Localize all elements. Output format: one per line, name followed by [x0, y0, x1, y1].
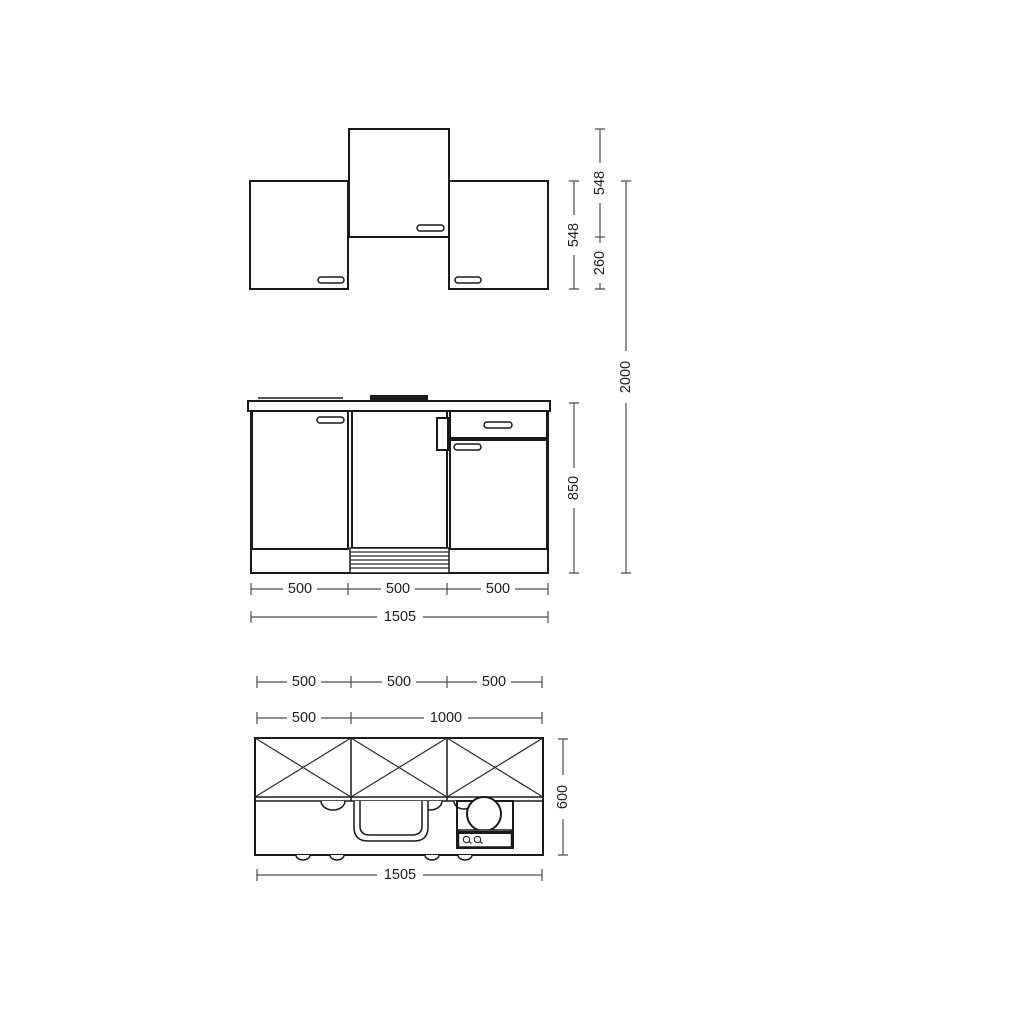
- dimension-middle-cabinet: 548 260: [592, 129, 608, 289]
- fridge-handle: [437, 418, 448, 450]
- dim-label-plan-overall-width: 1505: [384, 867, 416, 883]
- base-door-right: [450, 440, 547, 549]
- plan-front-handle-arc-1: [296, 855, 310, 860]
- dim-label-worktop-height: 850: [566, 476, 582, 500]
- dim-label-base-width-3: 500: [486, 581, 510, 597]
- dimension-side-cabinet-height: 548: [566, 181, 582, 289]
- dim-label-plan-right-segment: 1000: [430, 710, 462, 726]
- base-units-elevation: [248, 395, 550, 573]
- wall-cabinet-middle: [349, 129, 449, 237]
- drawer-handle: [484, 422, 512, 428]
- dimension-base-overall-width: 1505: [251, 609, 548, 625]
- worktop: [248, 401, 550, 411]
- hob-profile: [370, 395, 428, 400]
- technical-drawing-page: 548 548 260 2000 850 500 500 500 1505 50…: [0, 0, 1024, 1024]
- wall-cabinet-left: [250, 181, 348, 289]
- dim-label-plan-left-segment: 500: [292, 710, 316, 726]
- wall-cabinet-right-handle: [455, 277, 481, 283]
- dim-label-plan-width-1: 500: [292, 674, 316, 690]
- dim-label-middle-cabinet-offset: 260: [592, 251, 608, 275]
- hob-burner: [467, 797, 501, 831]
- base-door-left: [252, 411, 348, 549]
- dim-label-plan-depth: 600: [555, 785, 571, 809]
- dim-label-base-overall-width: 1505: [384, 609, 416, 625]
- dim-label-side-cabinet-height: 548: [566, 223, 582, 247]
- dim-label-base-width-2: 500: [386, 581, 410, 597]
- kitchen-technical-drawing: 548 548 260 2000 850 500 500 500 1505 50…: [0, 0, 1024, 1024]
- dimension-plan-segments: 500 1000: [257, 710, 542, 726]
- wall-cabinet-left-handle: [318, 277, 344, 283]
- dimension-overall-height: 2000: [618, 181, 634, 573]
- dimension-worktop-height: 850: [566, 403, 582, 573]
- plan-front-handle-arc-3: [425, 855, 439, 860]
- base-door-right-handle: [454, 444, 481, 450]
- dimension-plan-overall-width: 1505: [257, 867, 542, 883]
- dim-label-overall-height: 2000: [618, 361, 634, 393]
- dimension-plan-depth: 600: [555, 739, 571, 855]
- base-door-left-handle: [317, 417, 344, 423]
- dim-label-plan-width-2: 500: [387, 674, 411, 690]
- plan-front-handle-arc-2: [330, 855, 344, 860]
- fridge-door: [352, 411, 447, 548]
- plan-view: [255, 738, 543, 860]
- dim-label-plan-width-3: 500: [482, 674, 506, 690]
- dim-label-base-width-1: 500: [288, 581, 312, 597]
- wall-cabinet-right: [449, 181, 548, 289]
- wall-cabinets-elevation: [250, 129, 548, 289]
- plan-front-handle-arc-4: [458, 855, 472, 860]
- dimension-base-unit-widths: 500 500 500: [251, 581, 548, 597]
- dimension-plan-unit-widths: 500 500 500: [257, 674, 542, 690]
- dim-label-middle-cabinet-height: 548: [592, 171, 608, 195]
- wall-cabinet-middle-handle: [417, 225, 444, 231]
